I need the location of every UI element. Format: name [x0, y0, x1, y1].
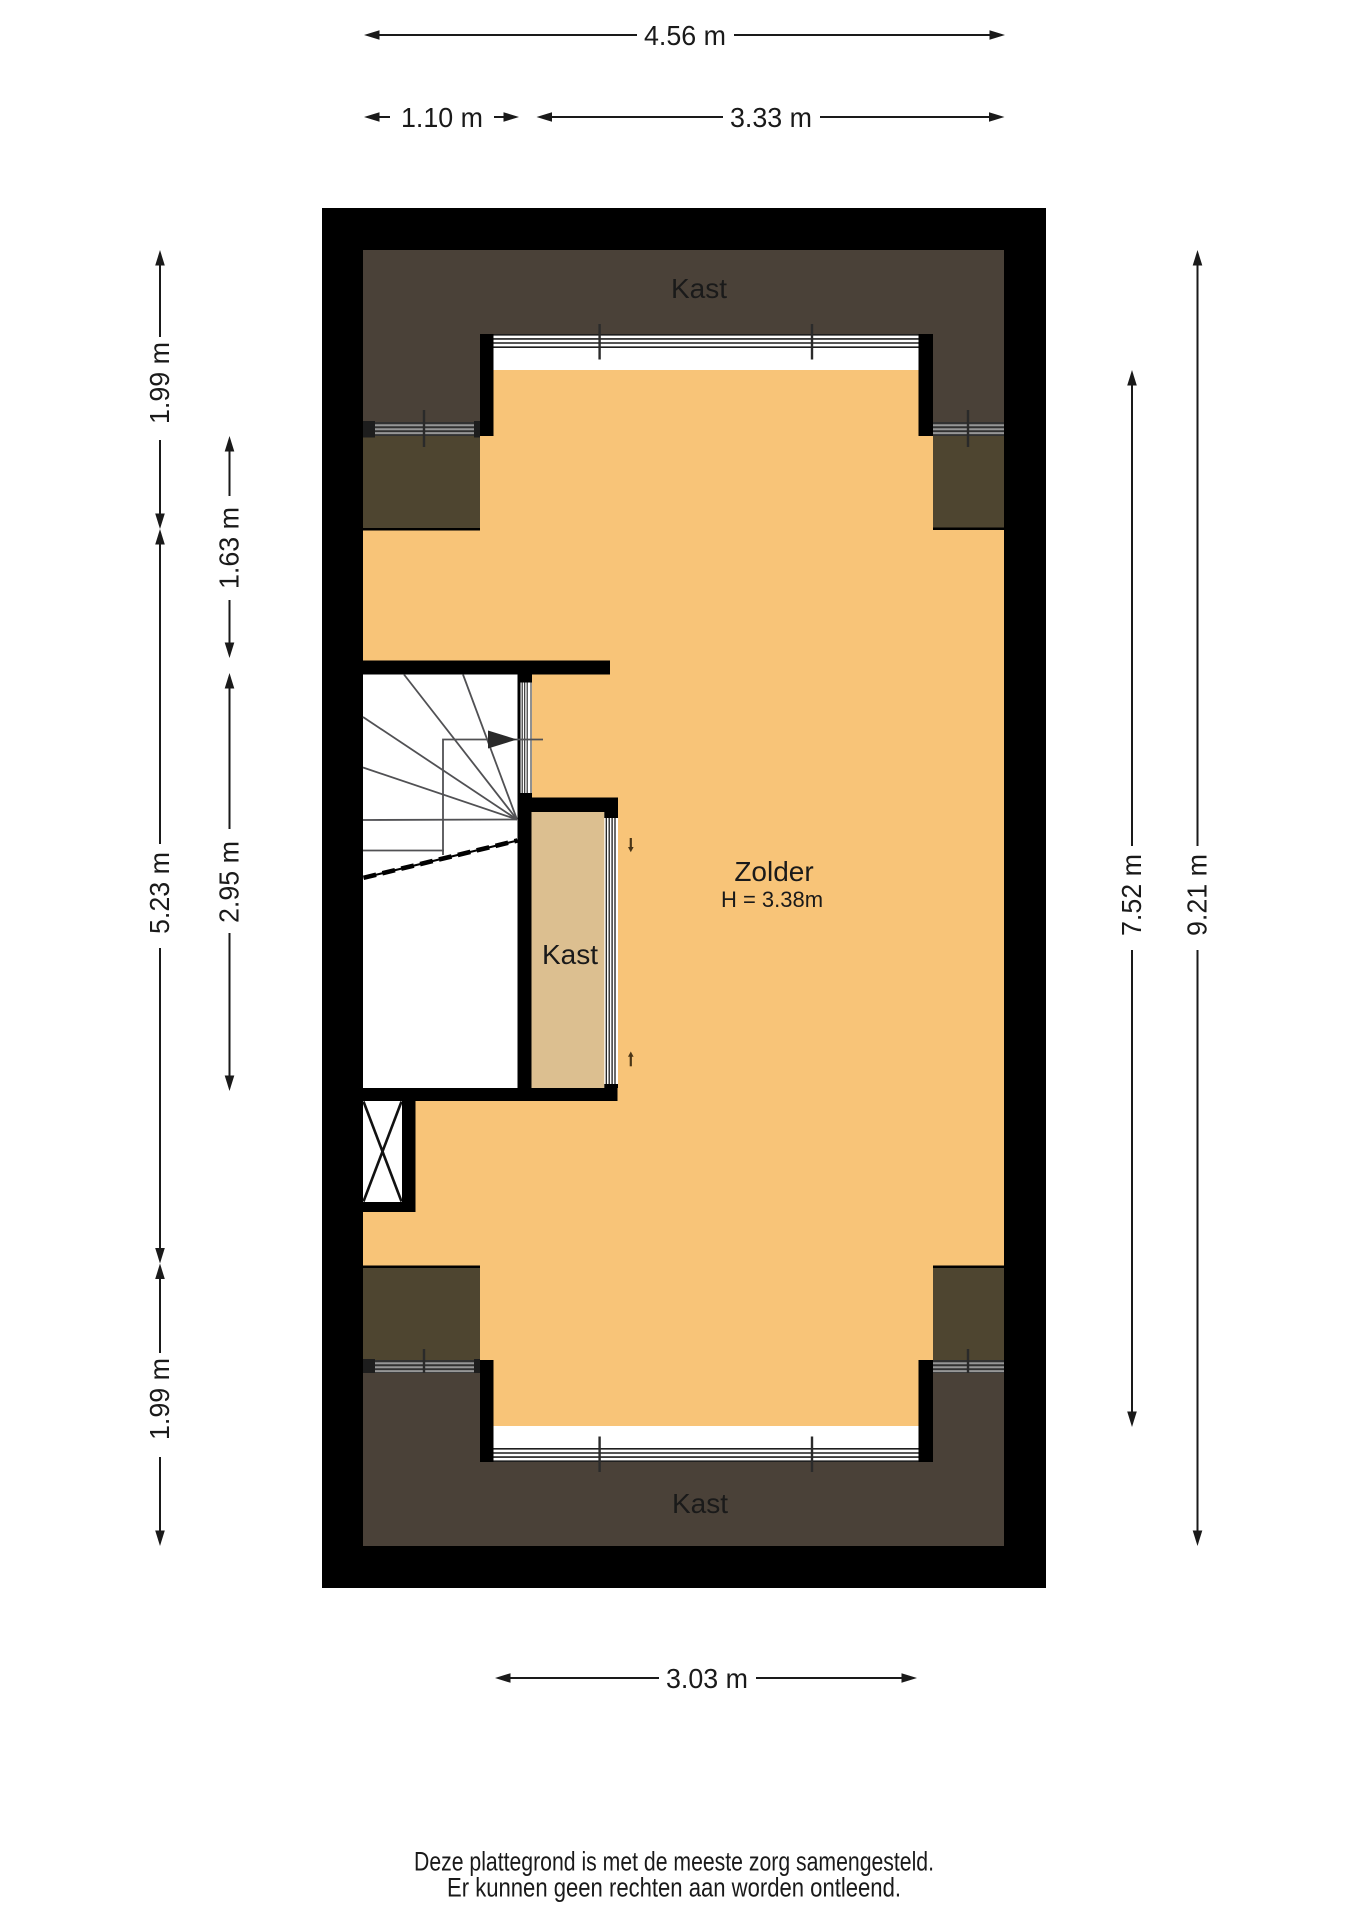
svg-text:1.99 m: 1.99 m [144, 1358, 175, 1440]
svg-text:Kast: Kast [542, 939, 598, 970]
svg-text:3.03 m: 3.03 m [666, 1663, 748, 1694]
svg-text:1.10 m: 1.10 m [401, 102, 483, 133]
svg-text:3.33 m: 3.33 m [730, 102, 812, 133]
svg-text:1.99 m: 1.99 m [144, 342, 175, 424]
svg-text:1.63 m: 1.63 m [214, 507, 245, 589]
svg-text:Zolder: Zolder [734, 856, 813, 887]
svg-text:H = 3.38m: H = 3.38m [721, 887, 823, 912]
svg-text:5.23 m: 5.23 m [144, 852, 175, 934]
svg-text:7.52 m: 7.52 m [1116, 854, 1147, 936]
svg-text:9.21 m: 9.21 m [1182, 854, 1213, 936]
svg-text:Kast: Kast [672, 1488, 728, 1519]
svg-text:4.56 m: 4.56 m [644, 20, 726, 51]
svg-text:Kast: Kast [671, 273, 727, 304]
svg-text:2.95 m: 2.95 m [214, 841, 245, 923]
svg-text:Er kunnen geen rechten aan wor: Er kunnen geen rechten aan worden ontlee… [447, 1872, 901, 1902]
